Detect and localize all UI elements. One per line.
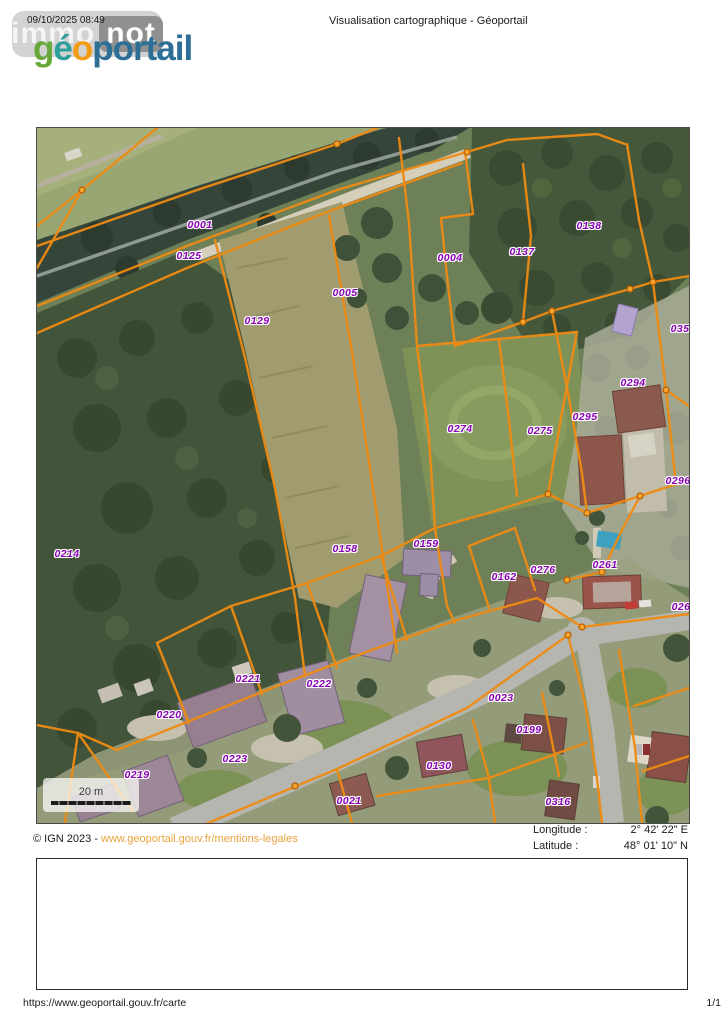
parcel-label-0275: 0275 bbox=[528, 425, 553, 437]
parcel-label-0274: 0274 bbox=[448, 423, 473, 435]
longitude-value: 2° 42' 22" E bbox=[631, 822, 689, 838]
parcel-label-0223: 0223 bbox=[223, 753, 248, 765]
parcel-label-0129: 0129 bbox=[245, 315, 270, 327]
logo: géoportail bbox=[33, 30, 192, 68]
scale-bar: 20 m bbox=[43, 778, 139, 812]
parcel-label-0276: 0276 bbox=[531, 564, 556, 576]
parcel-label-0220: 0220 bbox=[157, 709, 182, 721]
parcel-label-0001: 0001 bbox=[188, 219, 213, 231]
parcel-label-0004: 0004 bbox=[438, 252, 463, 264]
parcel-label-0125: 0125 bbox=[177, 250, 202, 262]
logo-letter: g bbox=[33, 29, 53, 68]
print-page: 09/10/2025 08:49 Visualisation cartograp… bbox=[0, 0, 724, 1024]
parcel-label-0214: 0214 bbox=[55, 548, 80, 560]
parcel-label-0023: 0023 bbox=[489, 692, 514, 704]
aerial-photo bbox=[37, 128, 689, 823]
parcel-label-026: 026 bbox=[672, 601, 690, 613]
latitude-label: Latitude : bbox=[533, 838, 578, 854]
logo-letter: é bbox=[53, 29, 71, 68]
parcel-label-0137: 0137 bbox=[510, 246, 535, 258]
copyright-text: © IGN 2023 - bbox=[33, 833, 101, 845]
logo-letter: o bbox=[72, 29, 92, 68]
parcel-label-0130: 0130 bbox=[427, 760, 452, 772]
parcel-label-0199: 0199 bbox=[517, 724, 542, 736]
logo-geo: géo bbox=[33, 29, 92, 68]
print-date: 09/10/2025 08:49 bbox=[27, 15, 105, 26]
parcel-label-0162: 0162 bbox=[492, 571, 517, 583]
logo-portail: portail bbox=[92, 29, 192, 68]
parcel-label-0222: 0222 bbox=[307, 678, 332, 690]
parcel-label-0021: 0021 bbox=[337, 795, 362, 807]
parcel-label-0138: 0138 bbox=[577, 220, 602, 232]
parcel-label-0316: 0316 bbox=[546, 796, 571, 808]
notes-box bbox=[36, 858, 688, 990]
parcel-label-0296: 0296 bbox=[666, 475, 690, 487]
map-viewport: 0001012500050129000401370138035029402950… bbox=[36, 127, 690, 824]
mentions-legales-link[interactable]: www.geoportail.gouv.fr/mentions-legales bbox=[101, 833, 298, 845]
parcel-label-0005: 0005 bbox=[333, 287, 358, 299]
scale-label: 20 m bbox=[79, 786, 103, 798]
parcel-label-0158: 0158 bbox=[333, 543, 358, 555]
latitude-value: 48° 01' 10" N bbox=[624, 838, 688, 854]
parcel-label-0159: 0159 bbox=[414, 538, 439, 550]
parcel-label-0261: 0261 bbox=[593, 559, 618, 571]
copyright-line: © IGN 2023 - www.geoportail.gouv.fr/ment… bbox=[33, 833, 298, 845]
parcel-label-0294: 0294 bbox=[621, 377, 646, 389]
parcel-label-0295: 0295 bbox=[573, 411, 598, 423]
coordinates-block: Longitude : 2° 42' 22" E Latitude : 48° … bbox=[533, 822, 688, 854]
longitude-label: Longitude : bbox=[533, 822, 587, 838]
scale-line bbox=[51, 801, 131, 805]
source-url: https://www.geoportail.gouv.fr/carte bbox=[23, 997, 186, 1009]
parcel-label-0221: 0221 bbox=[236, 673, 261, 685]
parcel-label-035: 035 bbox=[671, 323, 690, 335]
page-number: 1/1 bbox=[706, 997, 721, 1009]
page-title: Visualisation cartographique - Géoportai… bbox=[329, 15, 528, 27]
